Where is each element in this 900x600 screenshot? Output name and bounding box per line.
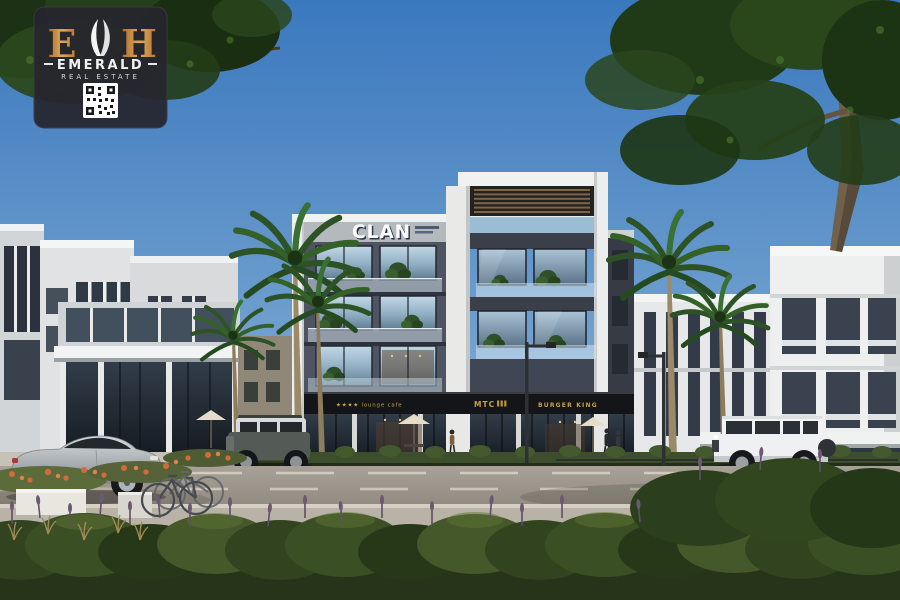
logo-brand-name: EMERALD — [57, 58, 144, 73]
architectural-render: CLAN CLAN — [0, 0, 900, 600]
dark-suv — [223, 415, 313, 474]
clan-sign-text: CLAN — [352, 222, 411, 243]
storefront-sign-cafe: ★★★★ lounge cafe — [336, 403, 402, 409]
logo-tagline: REAL ESTATE — [61, 73, 140, 81]
qr-code-icon — [83, 83, 118, 118]
storefront-sign-mtc: MTC — [474, 400, 495, 409]
center-building: CLAN CLAN — [292, 172, 634, 462]
logo-badge: E H EMERALD REAL ESTATE — [34, 7, 167, 128]
storefront-sign-burger: BURGER KING — [538, 402, 598, 409]
